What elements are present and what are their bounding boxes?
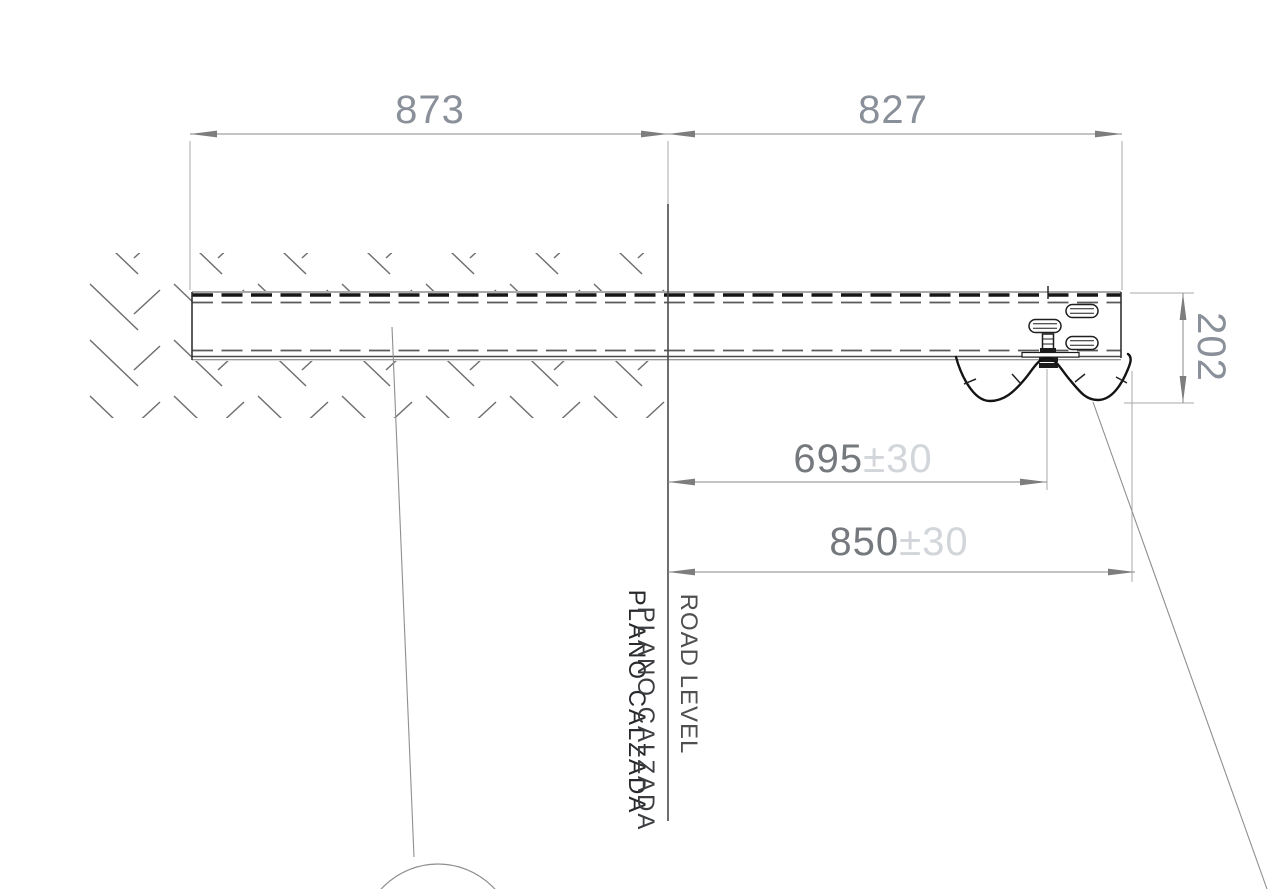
- dim-text-202: 202: [1191, 312, 1231, 382]
- slot-hole-bottom: [1066, 337, 1098, 350]
- rail-tick-3: [1075, 374, 1085, 382]
- cad-drawing-canvas: 873 827 202 695±30 850±30 ROAD LEVEL PLA…: [0, 0, 1268, 889]
- dim-text-695: 695±30: [793, 439, 932, 479]
- slot-hole-middle: [1029, 320, 1061, 333]
- detail-circle: [361, 864, 515, 889]
- dim-value-695: 695: [793, 437, 863, 481]
- road-level-label-en: ROAD LEVEL: [676, 594, 700, 755]
- dim-text-850: 850±30: [829, 522, 968, 562]
- dim-tolerance-850: ±30: [899, 520, 968, 564]
- slot-hole-top: [1066, 305, 1098, 318]
- dim-tolerance-695: ±30: [863, 437, 932, 481]
- washer-plate: [1022, 353, 1079, 358]
- dim-value-850: 850: [829, 520, 899, 564]
- rail-leader-line: [1093, 402, 1267, 889]
- post-beam: [192, 291, 1121, 361]
- road-level-label-es-overlay: PLANO CALZADA: [633, 607, 657, 832]
- dim-text-873: 873: [395, 90, 465, 130]
- dim-text-827: 827: [858, 90, 928, 130]
- rail-tick-2: [1012, 374, 1021, 384]
